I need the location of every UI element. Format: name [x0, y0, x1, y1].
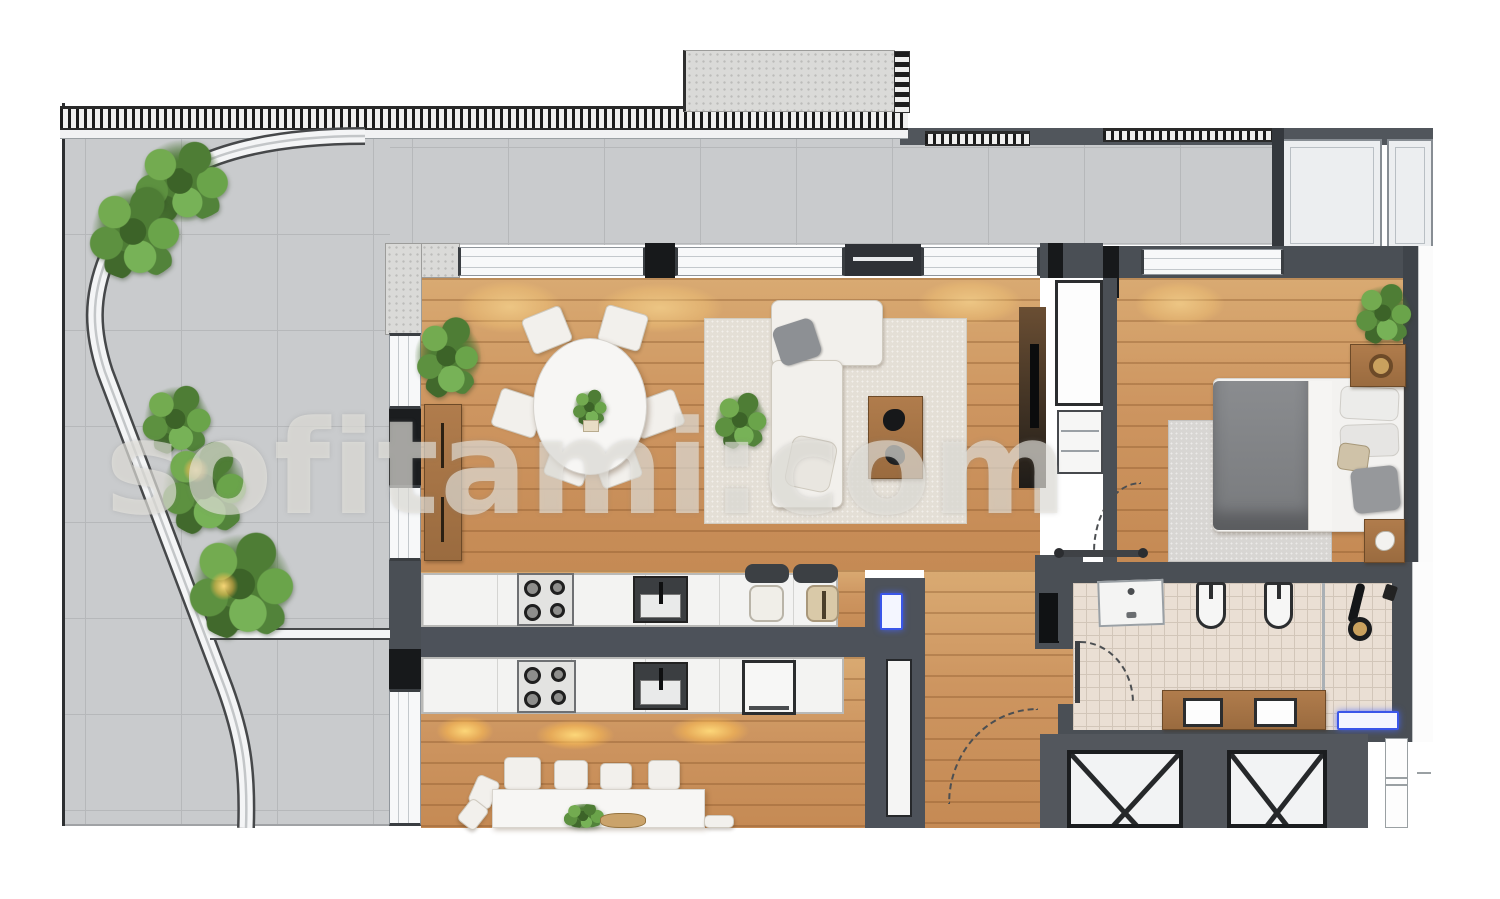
toilet-flush-line	[1277, 583, 1281, 599]
shower-glass-line	[1322, 583, 1325, 701]
bedroom-plant	[1353, 281, 1415, 345]
bathroom-right-wall	[1392, 583, 1412, 730]
stool-handle	[822, 591, 826, 619]
elevator-shaft	[1227, 750, 1327, 828]
neighbor-building-hatch	[894, 51, 910, 113]
toilet	[1196, 582, 1226, 629]
console-frame	[1254, 698, 1297, 727]
dining-chair	[648, 760, 680, 790]
stool-cushion	[793, 564, 838, 583]
balcony-glass-panel	[1387, 139, 1433, 252]
bathroom-left-wall	[1058, 583, 1073, 641]
closet-panel	[1055, 280, 1103, 406]
bed-pillow-gray	[1350, 465, 1401, 515]
sink-faucet	[659, 582, 663, 604]
balcony-sliding-door	[845, 244, 921, 276]
appliance	[742, 660, 796, 715]
door-opening	[1048, 243, 1063, 278]
toilet	[1264, 582, 1293, 629]
floor-plan-canvas: sofitami:com	[0, 0, 1500, 899]
sliding-door-glass-line	[853, 257, 913, 261]
dining-chair	[600, 763, 632, 790]
exterior-strip	[1412, 562, 1433, 742]
wall-segment	[645, 243, 675, 278]
garden-light	[204, 566, 244, 606]
vanity-faucet	[1127, 588, 1134, 595]
elevator-shaft	[1067, 750, 1183, 828]
unit-door-leaf	[886, 659, 912, 817]
sink-faucet	[659, 668, 663, 690]
balcony-divider-wall	[1272, 128, 1284, 252]
door-sensor-panel	[1337, 711, 1399, 730]
exterior-panel	[1385, 738, 1408, 828]
undercabinet-light	[655, 710, 765, 752]
bed-sheet-fold	[1308, 381, 1332, 530]
serving-bowl	[600, 813, 646, 828]
hall-wall-niche	[1039, 593, 1059, 643]
panel-line	[1386, 777, 1407, 779]
window-light-glow	[1120, 274, 1240, 334]
intercom-panel	[880, 593, 903, 630]
console-frame	[1183, 698, 1223, 727]
balcony-glass-panel	[1282, 139, 1382, 252]
exterior-strip	[1418, 246, 1433, 577]
elevator-x-icon	[1231, 754, 1323, 824]
bed-pillow	[1339, 385, 1400, 421]
bed-duvet	[1213, 381, 1310, 530]
living-window	[921, 247, 1040, 276]
neighbor-building-block	[683, 50, 895, 112]
kitchen-sink	[633, 576, 688, 623]
living-window	[675, 247, 845, 276]
bedroom-window	[1141, 249, 1284, 275]
panel-line	[1417, 772, 1431, 774]
nightstand	[1350, 344, 1406, 387]
bathroom-left-wall	[1058, 704, 1073, 730]
kitchen-sink	[633, 662, 688, 710]
panel-line	[1386, 784, 1407, 786]
vanity-faucet	[1126, 612, 1136, 618]
toilet-flush-line	[1209, 583, 1213, 599]
elevator-x-icon	[1071, 754, 1179, 824]
nightstand	[1364, 519, 1405, 563]
door-end-knob	[1054, 548, 1064, 558]
balcony-railing-small	[925, 131, 1030, 146]
watermark-text: sofitami:com	[105, 392, 1125, 544]
nightstand-decor	[1369, 354, 1393, 378]
bathroom-vanity	[1097, 579, 1165, 627]
appliance-handle	[749, 706, 789, 710]
bar-stool	[806, 585, 839, 622]
bar-stool	[749, 585, 784, 622]
dining-chair	[704, 815, 734, 828]
nightstand-decor	[1375, 531, 1395, 551]
bedroom-balcony-railing	[1103, 128, 1272, 142]
stool-cushion	[745, 564, 789, 583]
shower-head	[1348, 617, 1372, 641]
terrace-shrub	[84, 183, 186, 280]
